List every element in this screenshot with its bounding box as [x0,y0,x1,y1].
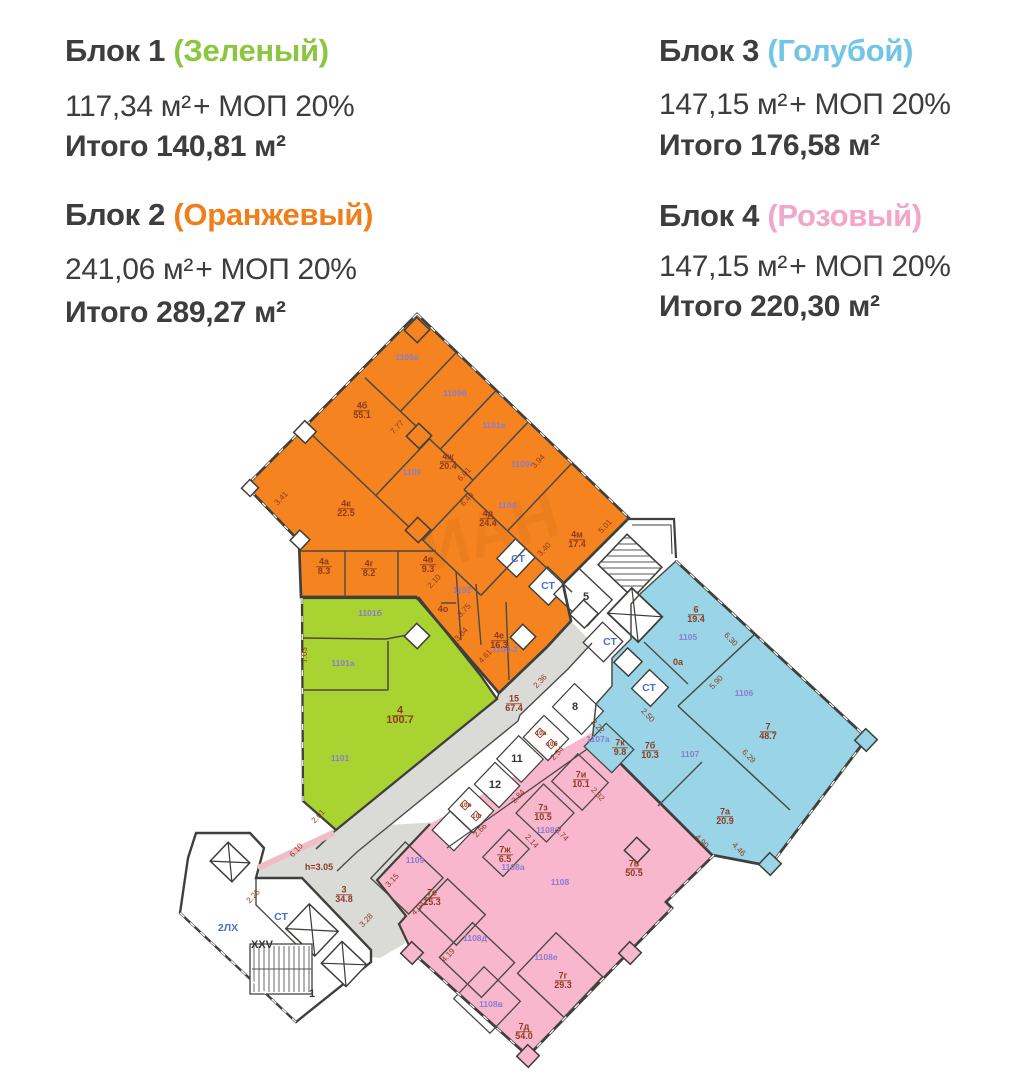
svg-text:1101а: 1101а [331,658,354,668]
svg-text:7д: 7д [519,1022,530,1032]
svg-text:10г: 10г [472,813,482,820]
svg-text:Блок 2 (Оранжевый): Блок 2 (Оранжевый) [65,197,373,232]
svg-text:34.8: 34.8 [335,894,353,904]
svg-text:7к: 7к [615,738,625,748]
svg-text:5: 5 [583,591,589,603]
svg-text:СТ: СТ [603,636,617,648]
svg-text:7а: 7а [720,807,731,817]
svg-text:7е: 7е [427,888,437,898]
svg-text:4г: 4г [365,559,374,569]
svg-text:10.5: 10.5 [534,812,552,822]
svg-text:2ЛХ: 2ЛХ [218,922,238,934]
svg-text:117,34 м² + МОП 20%: 117,34 м² + МОП 20% [65,90,354,123]
svg-text:4к: 4к [341,499,351,509]
svg-text:9.8: 9.8 [614,747,627,757]
svg-text:1107а: 1107а [586,734,609,744]
svg-text:241,06 м² + МОП 20%: 241,06 м² + МОП 20% [65,253,357,286]
svg-text:1101в: 1101в [482,420,506,430]
svg-text:50.5: 50.5 [625,868,643,878]
svg-text:Блок 1 (Зеленый): Блок 1 (Зеленый) [65,33,329,68]
svg-text:Итого 289,27 м²: Итого 289,27 м² [65,296,286,329]
svg-text:7.03: 7.03 [300,647,309,663]
svg-text:1109а: 1109а [395,352,418,362]
svg-text:3: 3 [341,885,346,895]
svg-text:6: 6 [693,605,698,615]
svg-text:10.3: 10.3 [641,750,659,760]
svg-text:11: 11 [511,753,523,765]
svg-text:10.1: 10.1 [572,779,590,789]
svg-text:1108в: 1108в [479,999,503,1009]
svg-text:1105: 1105 [679,632,698,642]
svg-text:0а: 0а [673,657,684,667]
svg-text:48.7: 48.7 [759,731,777,741]
svg-text:СТ: СТ [274,911,288,923]
svg-text:СТ: СТ [511,553,525,565]
svg-text:24.4: 24.4 [479,518,497,528]
svg-text:1104: 1104 [498,500,517,510]
svg-text:7з: 7з [538,803,548,813]
svg-text:7: 7 [765,722,770,732]
svg-text:XXV: XXV [251,939,274,951]
svg-text:20.4: 20.4 [439,461,457,471]
svg-text:4е: 4е [494,631,504,641]
svg-text:7ж: 7ж [499,845,511,855]
svg-text:4о: 4о [438,604,449,614]
svg-text:1107: 1107 [681,749,700,759]
svg-text:1: 1 [309,988,315,1000]
svg-text:6.5: 6.5 [499,854,512,864]
svg-text:1101б: 1101б [358,608,382,618]
svg-text:10в: 10в [460,802,471,809]
svg-text:15: 15 [509,694,519,704]
svg-text:Блок 3 (Голубой): Блок 3 (Голубой) [659,33,913,68]
svg-text:Итого 220,30 м²: Итого 220,30 м² [659,290,880,323]
svg-text:67.4: 67.4 [505,703,523,713]
svg-text:1109: 1109 [403,467,422,477]
svg-text:8: 8 [572,701,578,713]
svg-text:4а: 4а [319,557,330,567]
svg-text:СТ: СТ [642,682,656,694]
svg-text:4д: 4д [483,509,494,519]
svg-text:9.3: 9.3 [422,564,435,574]
svg-text:1108д: 1108д [463,933,487,943]
svg-text:1109: 1109 [406,855,425,865]
svg-text:147,15 м² + МОП 20%: 147,15 м² + МОП 20% [659,250,951,283]
svg-text:19.4: 19.4 [687,614,705,624]
svg-text:54.0: 54.0 [515,1031,533,1041]
svg-text:22.5: 22.5 [337,508,355,518]
svg-text:7в: 7в [629,859,640,869]
svg-text:1108: 1108 [551,877,570,887]
svg-text:16.3: 16.3 [490,640,508,650]
svg-text:7б: 7б [645,741,656,751]
svg-text:1102: 1102 [453,585,472,595]
svg-text:4в: 4в [423,555,434,565]
svg-text:1101: 1101 [331,753,350,763]
svg-text:4б: 4б [357,401,368,411]
svg-text:147,15 м² + МОП 20%: 147,15 м² + МОП 20% [659,88,951,121]
svg-text:8.2: 8.2 [363,568,376,578]
svg-text:8.3: 8.3 [318,566,331,576]
svg-text:10б: 10б [546,740,557,748]
svg-text:СТ: СТ [541,580,555,592]
svg-text:1109б: 1109б [443,388,467,398]
svg-text:29.3: 29.3 [554,980,572,990]
svg-text:1106: 1106 [735,688,754,698]
svg-text:55.1: 55.1 [353,410,371,420]
svg-text:17.4: 17.4 [568,539,586,549]
svg-text:20.9: 20.9 [716,816,734,826]
svg-text:Итого 176,58 м²: Итого 176,58 м² [659,129,880,162]
svg-text:10а: 10а [536,730,547,737]
svg-text:4ж: 4ж [442,452,454,462]
svg-text:7и: 7и [576,770,587,780]
svg-text:Итого 140,81 м²: Итого 140,81 м² [65,130,286,163]
svg-text:Блок 4 (Розовый): Блок 4 (Розовый) [659,198,922,233]
svg-text:12: 12 [489,779,501,791]
svg-text:7г: 7г [559,971,568,981]
svg-text:h=3.05: h=3.05 [305,862,333,872]
svg-text:1108е: 1108е [534,952,557,962]
svg-text:4м: 4м [571,530,583,540]
